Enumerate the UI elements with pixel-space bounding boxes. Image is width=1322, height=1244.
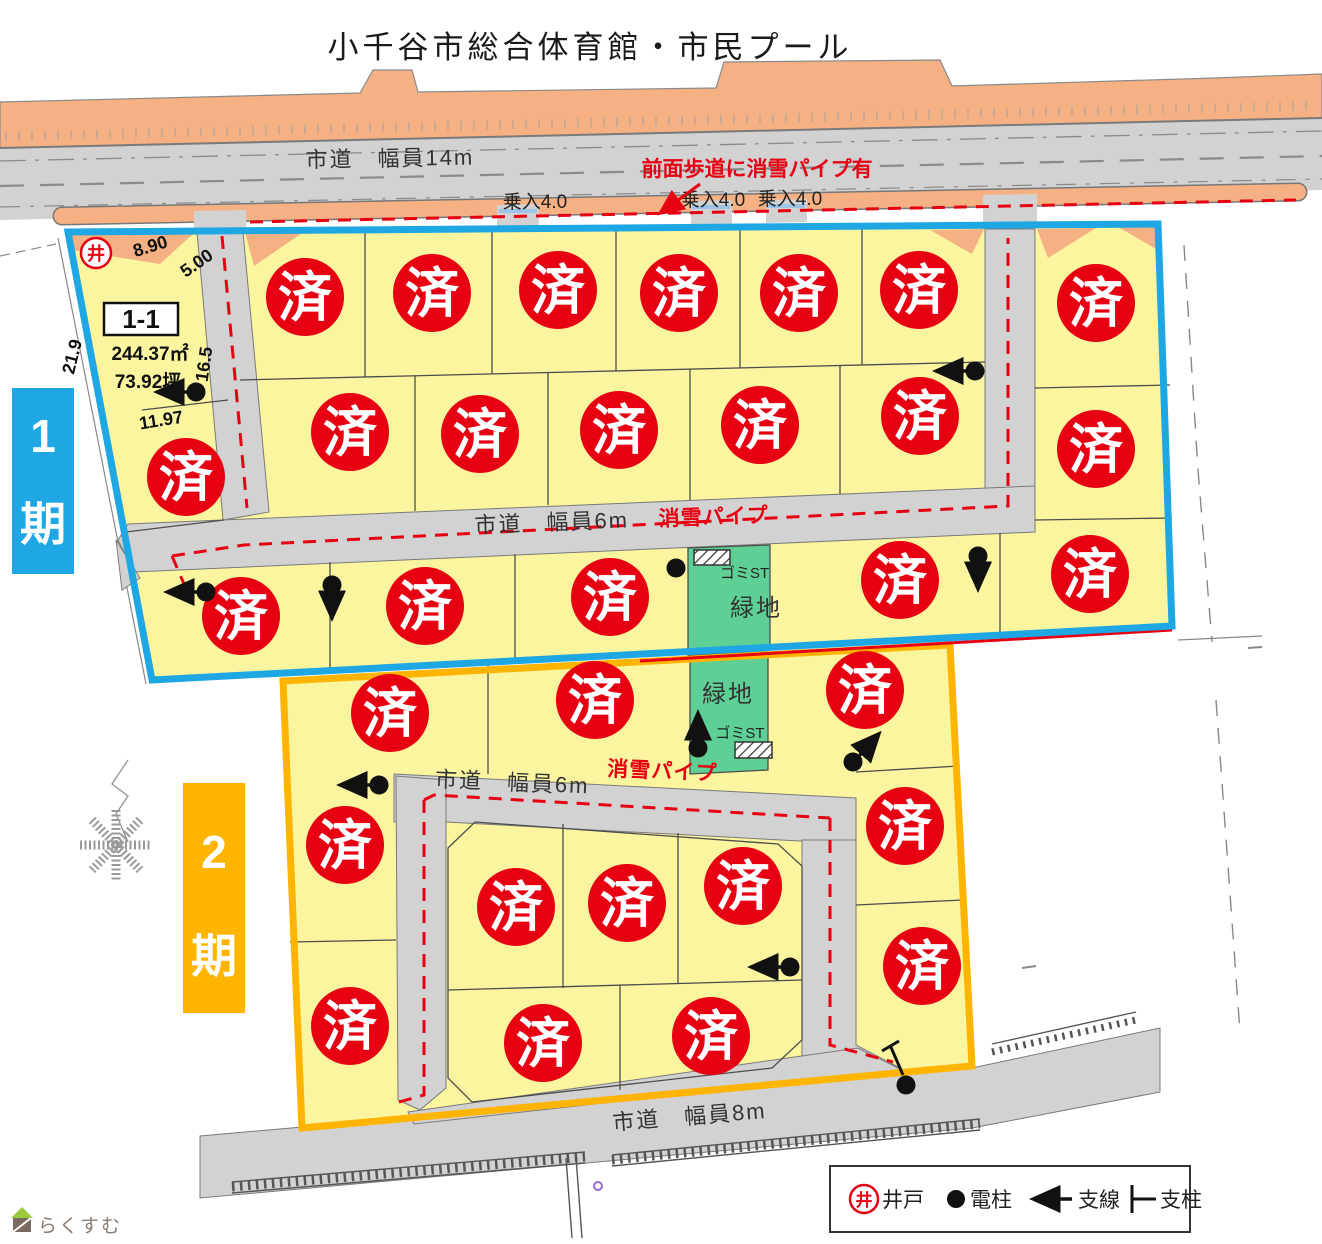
phase2-number: 2 [201,826,227,878]
sold-mark: 済 [571,558,649,636]
phase2-road-left [396,776,446,1110]
legend-pole-label: 電柱 [970,1189,1012,1212]
site-plan-map: 市道 幅員14m 乗入4.0 乗入4.0 乗入4.0 前面歩道に消雪パイプ有 小… [0,0,1322,1244]
svg-text:済: 済 [583,568,638,628]
sold-mark: 済 [306,806,384,884]
svg-text:済: 済 [684,1007,739,1067]
sold-mark: 済 [866,787,944,865]
sold-mark: 済 [147,438,225,516]
sold-mark: 済 [441,395,519,473]
svg-text:済: 済 [278,268,333,328]
svg-text:済: 済 [772,264,827,324]
svg-text:済: 済 [733,396,788,456]
sold-mark: 済 [266,258,344,336]
svg-text:済: 済 [652,264,707,324]
svg-text:済: 済 [318,816,373,876]
sold-mark: 済 [311,987,389,1065]
logo-house-icon [11,1207,33,1218]
logo-text: らくすむ [38,1216,122,1237]
phase1-kanji: 期 [20,498,66,550]
svg-text:済: 済 [1063,545,1118,605]
svg-text:済: 済 [1069,420,1124,480]
sold-mark: 済 [386,567,464,645]
legend-well-label: 井戸 [882,1189,924,1212]
sold-mark: 済 [760,254,838,332]
sold-mark: 済 [881,377,959,455]
sold-mark: 済 [477,868,555,946]
svg-text:済: 済 [873,551,928,611]
svg-text:済: 済 [159,448,214,508]
legend-guy-label: 支線 [1078,1189,1120,1212]
utility-pole-icon [897,1076,916,1095]
svg-text:済: 済 [323,403,378,463]
svg-text:済: 済 [892,261,947,321]
logo: らくすむ [11,1207,122,1237]
sold-mark: 済 [880,251,958,329]
sold-mark: 済 [519,251,597,329]
legend: 井 井戸 電柱 支線 支柱 [830,1166,1202,1232]
svg-text:井: 井 [87,243,105,264]
svg-text:済: 済 [516,1014,571,1074]
dim-21-9: 21.9 [58,337,86,376]
svg-text:済: 済 [592,401,647,461]
lot-area-tsubo: 73.92坪 [115,371,182,393]
top-road-area: 市道 幅員14m 乗入4.0 乗入4.0 乗入4.0 前面歩道に消雪パイプ有 [0,60,1322,237]
svg-text:済: 済 [716,857,771,917]
garbage-station-2-label: ゴミST [715,724,764,742]
lot-number: 1-1 [122,304,160,334]
sold-mark: 済 [504,1004,582,1082]
sidewalk-pipe-note: 前面歩道に消雪パイプ有 [642,157,873,181]
svg-text:済: 済 [1069,274,1124,334]
sold-mark: 済 [721,386,799,464]
phase1-number: 1 [30,410,56,462]
svg-text:済: 済 [838,661,893,721]
svg-text:済: 済 [489,878,544,938]
green-space-2-label: 緑地 [702,681,754,708]
garbage-station-icon [735,742,772,758]
sold-mark: 済 [704,847,782,925]
svg-text:井: 井 [856,1190,873,1210]
sold-mark: 済 [826,651,904,729]
phase2-kanji: 期 [191,930,237,982]
sold-mark: 済 [672,997,750,1075]
phase1-pipe-label: 消雪パイプ [658,503,769,531]
sold-mark: 済 [861,541,939,619]
phase2-pipe-label: 消雪パイプ [607,757,718,786]
svg-text:済: 済 [323,997,378,1057]
svg-text:済: 済 [531,261,586,321]
sold-mark: 済 [588,864,666,942]
top-road-label: 市道 幅員14m [305,145,474,173]
garbage-station-1-label: ゴミST [720,564,769,582]
survey-marker-icon [80,760,152,880]
garbage-station-icon [694,550,730,565]
svg-text:済: 済 [405,264,460,324]
page-title: 小千谷市総合体育館・市民プール [328,30,853,65]
svg-text:済: 済 [600,874,655,934]
sold-mark: 済 [580,391,658,469]
green-space-1-label: 緑地 [730,595,782,622]
sold-mark: 済 [640,254,718,332]
sold-mark: 済 [556,661,634,739]
svg-text:済: 済 [878,797,933,857]
sold-mark: 済 [883,927,961,1005]
sold-mark: 済 [311,393,389,471]
sold-mark: 済 [1051,535,1129,613]
sold-mark: 済 [1057,264,1135,342]
utility-pole-icon [667,559,686,578]
legend-pole-icon [947,1190,965,1208]
svg-text:済: 済 [398,577,453,637]
sold-mark: 済 [393,254,471,332]
svg-text:済: 済 [363,684,418,744]
svg-text:済: 済 [568,671,623,731]
phase2-label: 2 期 [183,783,245,1013]
legend-post-label: 支柱 [1160,1189,1202,1212]
svg-text:済: 済 [893,387,948,447]
sold-mark: 済 [1057,410,1135,488]
legend-well-icon: 井 [850,1185,878,1213]
entry-label-3: 乗入4.0 [758,188,822,210]
sold-mark: 済 [351,674,429,752]
site-plan-svg: 市道 幅員14m 乗入4.0 乗入4.0 乗入4.0 前面歩道に消雪パイプ有 小… [0,0,1322,1244]
lot-area-m2: 244.37㎡ [111,342,188,365]
svg-text:済: 済 [214,587,269,647]
phase1-label: 1 期 [12,388,74,574]
svg-text:済: 済 [895,937,950,997]
well-icon: 井 [81,238,111,268]
entry-label-1: 乗入4.0 [503,191,567,213]
svg-text:済: 済 [453,405,508,465]
